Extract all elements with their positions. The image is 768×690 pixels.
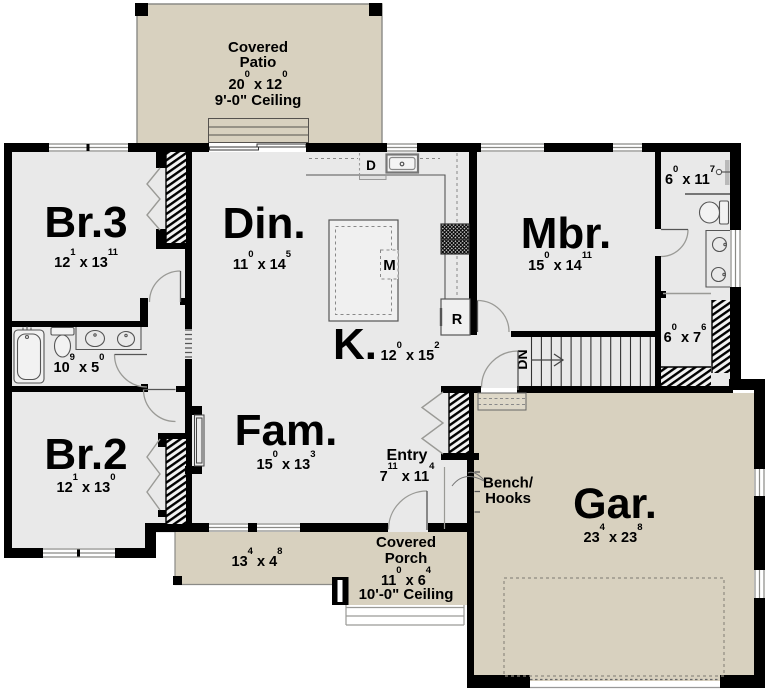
svg-text:Mbr.: Mbr.	[521, 209, 611, 258]
svg-text:R: R	[452, 312, 463, 328]
svg-text:Fam.: Fam.	[235, 406, 338, 455]
svg-text:DN: DN	[514, 349, 530, 369]
svg-text:D: D	[366, 158, 376, 173]
svg-text:Gar.: Gar.	[573, 480, 657, 528]
svg-text:K.: K.	[333, 320, 377, 369]
svg-text:10'-0" Ceiling: 10'-0" Ceiling	[359, 586, 454, 603]
svg-text:Bench/: Bench/	[483, 475, 534, 492]
svg-text:Hooks: Hooks	[485, 490, 531, 507]
svg-text:Br.3: Br.3	[44, 198, 127, 247]
svg-text:9'-0" Ceiling: 9'-0" Ceiling	[215, 92, 302, 109]
svg-text:M: M	[383, 257, 396, 274]
svg-text:Covered: Covered	[376, 534, 436, 551]
svg-text:Din.: Din.	[222, 199, 305, 248]
svg-text:Porch: Porch	[385, 550, 428, 567]
